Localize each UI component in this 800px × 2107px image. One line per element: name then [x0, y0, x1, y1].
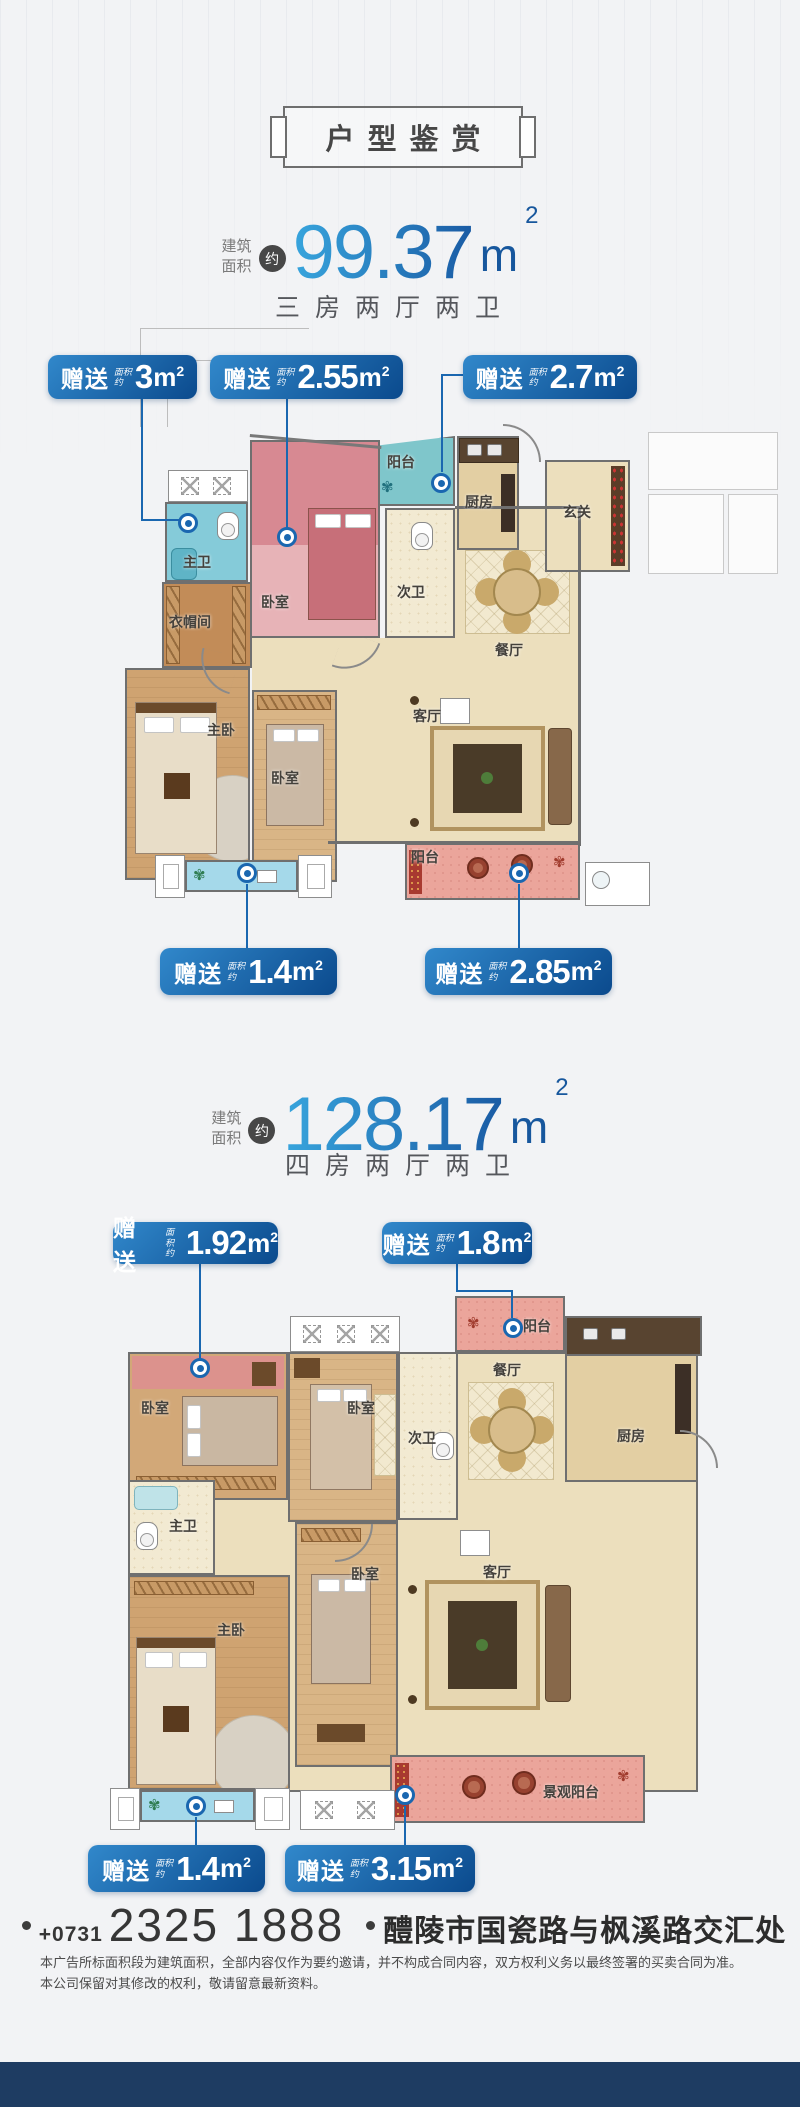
gift-label: 赠送 — [223, 360, 271, 394]
master-bedroom-room — [125, 668, 250, 880]
disclaimer-line2: 本公司保留对其修改的权利，敬请留意最新资料。 — [40, 1973, 762, 1994]
gift-unit-sup: 2 — [455, 1854, 463, 1870]
decor-knob-icon — [408, 1695, 417, 1704]
connector-line — [456, 1264, 458, 1292]
gift-point-marker — [503, 1318, 523, 1338]
page-title: 户型鉴赏 — [312, 116, 493, 158]
bedside-rug — [374, 1394, 396, 1476]
gift-sub1: 面积 — [436, 1233, 454, 1243]
gift-value: 1.4 — [176, 1850, 219, 1888]
gift-badge-1-8m2: 赠送 面积约 1.8 m2 — [382, 1222, 532, 1264]
gift-sub1: 面积 — [529, 367, 547, 377]
phone-number: 2325 1888 — [109, 1898, 344, 1952]
dining-table — [488, 1406, 536, 1454]
gift-badge-1-4m2: 赠送 面积约 1.4 m2 — [160, 948, 337, 995]
contact-row: +0731 2325 1888 醴陵市国瓷路与枫溪路交汇处 — [0, 1898, 800, 1952]
room-label-bath2: 次卫 — [397, 582, 425, 602]
deck-box — [257, 870, 277, 883]
unit1-area-value: 99.37 — [293, 223, 473, 284]
unit1-area-sup: 2 — [525, 202, 538, 230]
room-label-bedroom1: 卧室 — [261, 592, 289, 612]
rattan-chair — [512, 1771, 536, 1795]
room-label-kitchen: 厨房 — [465, 492, 493, 512]
side-platform — [298, 855, 332, 898]
gift-value: 3 — [135, 358, 152, 396]
pillow — [273, 729, 295, 742]
ac-platform — [168, 470, 248, 502]
ac-platform — [290, 1316, 400, 1352]
sofa — [548, 728, 572, 825]
gift-point-marker — [190, 1358, 210, 1378]
gift-unit-m: m — [247, 1228, 270, 1258]
gift-badge-2-85m2: 赠送 面积约 2.85 m2 — [425, 948, 612, 995]
unit1-area-prefix-line1: 建筑 — [222, 237, 252, 257]
gift-unit-m: m — [153, 362, 176, 392]
unit1-layout-subtitle: 三房两厅两卫 — [0, 288, 775, 324]
disclaimer-text: 本广告所标面积段为建筑面积，全部内容仅作为要约邀请，并不构成合同内容，双方权利义… — [40, 1952, 762, 1995]
unit2-area-prefix: 建筑 面积 — [211, 1109, 241, 1148]
gift-sub2: 约 — [276, 377, 294, 387]
gift-sub2: 约 — [350, 1869, 368, 1879]
appliance-column — [501, 474, 515, 532]
connector-line — [199, 1264, 201, 1358]
gift-unit: m2 — [292, 956, 323, 987]
tv-cabinet — [440, 698, 470, 724]
headboard — [137, 1638, 215, 1648]
gift-unit-m: m — [292, 956, 315, 986]
gift-unit-sup: 2 — [382, 363, 390, 379]
gift-point-marker — [431, 473, 451, 493]
gift-unit-sup: 2 — [315, 957, 323, 973]
gift-sub1: 面积 — [165, 1227, 183, 1248]
unit1-area-unit: m — [480, 228, 518, 282]
living-area — [330, 668, 580, 843]
gift-point-marker — [395, 1785, 415, 1805]
public-core-outline — [648, 494, 724, 574]
room-label-dining: 餐厅 — [495, 640, 523, 660]
rattan-chair — [462, 1775, 486, 1799]
gift-unit-m: m — [500, 1228, 523, 1258]
room-label-view-balcony: 景观阳台 — [543, 1782, 599, 1802]
bedroom1-room — [128, 1352, 288, 1500]
ac-unit-icon — [213, 477, 231, 495]
gift-badge-1-92m2: 赠送 面积约 1.92 m2 — [113, 1222, 278, 1264]
desk — [252, 1362, 276, 1386]
ac-unit-icon — [315, 1801, 333, 1819]
entry-door-arc — [680, 1430, 718, 1468]
header-banner: 户型鉴赏 — [283, 106, 523, 168]
rattan-chair — [467, 857, 489, 879]
headboard — [136, 703, 216, 713]
connector-line — [195, 1817, 197, 1847]
address-text: 醴陵市国瓷路与枫溪路交汇处 — [383, 1906, 786, 1950]
bed — [135, 702, 217, 854]
gift-unit: m2 — [153, 362, 184, 393]
pillow — [187, 1405, 201, 1429]
gift-unit: m2 — [220, 1853, 251, 1884]
room-label-entry: 玄关 — [563, 502, 591, 522]
east-wall — [578, 506, 581, 846]
pillow — [145, 1652, 173, 1668]
connector-line — [456, 1290, 513, 1292]
banner-left-handle-icon — [270, 116, 287, 158]
gift-unit-m: m — [220, 1853, 243, 1883]
toilet-icon — [411, 522, 433, 550]
ac-platform — [300, 1790, 395, 1830]
plant-icon — [193, 866, 206, 884]
room-label-living: 客厅 — [413, 706, 441, 726]
gift-value: 2.85 — [509, 953, 569, 991]
gift-unit-sup: 2 — [270, 1229, 278, 1245]
room-label-bedroom3: 卧室 — [351, 1564, 379, 1584]
gift-badge-1-4m2-b: 赠送 面积约 1.4 m2 — [88, 1845, 265, 1892]
bath2-room — [385, 508, 455, 638]
pillow — [179, 1652, 207, 1668]
sink-icon — [467, 444, 482, 456]
gift-sub2: 约 — [114, 377, 132, 387]
connector-line — [511, 1290, 513, 1318]
gift-unit: m2 — [500, 1228, 531, 1259]
bullet-icon — [22, 1921, 31, 1930]
gift-unit: m2 — [571, 956, 602, 987]
dresser — [317, 1724, 365, 1742]
pillow — [144, 717, 174, 733]
banner-right-handle-icon — [519, 116, 536, 158]
unit1-area-prefix: 建筑 面积 — [222, 237, 252, 276]
plant-icon — [381, 478, 394, 496]
laundry-fixture — [585, 862, 650, 906]
gift-label: 赠送 — [435, 955, 483, 989]
kitchen-room — [565, 1352, 698, 1482]
pillow — [345, 514, 371, 528]
round-rug — [210, 1715, 290, 1790]
gift-sub2: 约 — [165, 1248, 183, 1258]
ac-unit-icon — [303, 1325, 321, 1343]
wardrobe — [257, 695, 331, 710]
unit2-area-row: 建筑 面积 约 128.17 m 2 — [0, 1060, 780, 1156]
sink-icon — [487, 444, 502, 456]
bed — [136, 1637, 216, 1785]
dining-table — [493, 568, 541, 616]
phone-prefix: +0731 — [39, 1923, 103, 1947]
unit2-area-prefix-line1: 建筑 — [211, 1109, 241, 1129]
gift-label: 赠送 — [297, 1852, 345, 1886]
disclaimer-line1: 本广告所标面积段为建筑面积，全部内容仅作为要约邀请，并不构成合同内容，双方权利义… — [40, 1952, 762, 1973]
gift-badge-2-55m2: 赠送 面积约 2.55 m2 — [210, 355, 403, 399]
gift-label: 赠送 — [61, 360, 109, 394]
plant-icon — [467, 1314, 480, 1332]
gift-badge-3m2: 赠送 面积约 3 m2 — [48, 355, 197, 399]
connector-line — [141, 398, 143, 521]
gift-unit: m2 — [593, 362, 624, 393]
bottom-navy-bar — [0, 2062, 800, 2107]
entry-plant-cabinet — [611, 466, 625, 566]
decor-knob-icon — [408, 1585, 417, 1594]
connector-line — [141, 519, 179, 521]
gift-unit: m2 — [247, 1228, 278, 1259]
gift-sub1: 面积 — [114, 367, 132, 377]
plant-icon — [617, 1767, 630, 1785]
unit1-area-prefix-line2: 面积 — [222, 257, 252, 277]
connector-line — [286, 398, 288, 528]
decor-knob-icon — [410, 818, 419, 827]
pillow — [318, 1579, 340, 1592]
bed — [311, 1574, 371, 1684]
room-label-master-bath: 主卫 — [183, 552, 211, 572]
gift-label: 赠送 — [113, 1209, 160, 1277]
pillow — [315, 514, 341, 528]
pillow — [180, 717, 210, 733]
ac-unit-icon — [181, 477, 199, 495]
room-label-bath2: 次卫 — [408, 1428, 436, 1448]
desk — [294, 1358, 320, 1378]
ac-unit-icon — [337, 1325, 355, 1343]
closet-shelf — [232, 586, 246, 664]
ac-unit-icon — [371, 1325, 389, 1343]
toilet-icon — [136, 1522, 158, 1550]
gift-value: 1.8 — [457, 1224, 500, 1262]
gift-sub1: 面积 — [155, 1858, 173, 1868]
living-rug — [425, 1580, 540, 1710]
view-balcony-room — [390, 1755, 645, 1823]
room-label-bedroom2: 卧室 — [347, 1398, 375, 1418]
bedroom2-room — [288, 1352, 398, 1522]
unit2-layout-subtitle: 四房两厅两卫 — [0, 1146, 795, 1182]
gift-unit-sup: 2 — [617, 363, 625, 379]
gift-sub1: 面积 — [488, 961, 506, 971]
gift-label: 赠送 — [174, 955, 222, 989]
gift-point-marker — [509, 863, 529, 883]
gift-unit: m2 — [359, 362, 390, 393]
connector-line — [246, 884, 248, 950]
gift-unit: m2 — [432, 1853, 463, 1884]
bathtub — [134, 1486, 178, 1510]
room-label-master-bedroom: 主卧 — [217, 1620, 245, 1640]
toilet-icon — [217, 512, 239, 540]
gift-value: 2.7 — [550, 358, 593, 396]
room-label-master-bath: 主卫 — [169, 1516, 197, 1536]
unit1-area-row: 建筑 面积 约 99.37 m 2 — [0, 188, 760, 284]
entry-door-arc — [503, 424, 541, 462]
master-bedroom-room — [128, 1575, 290, 1790]
room-label-balcony-top: 阳台 — [523, 1316, 551, 1336]
poster-page: 户型鉴赏 建筑 面积 约 99.37 m 2 三房两厅两卫 赠送 面积约 3 m… — [0, 0, 800, 2107]
sofa — [545, 1585, 571, 1702]
gift-point-marker — [277, 527, 297, 547]
room-label-dining: 餐厅 — [493, 1360, 521, 1380]
gift-sub1: 面积 — [227, 961, 245, 971]
bed — [308, 508, 376, 620]
floor-plan-1: 阳台 厨房 玄关 主卫 卧室 次卫 衣帽间 餐厅 客厅 主卧 卧室 阳台 — [105, 320, 650, 908]
pillow — [297, 729, 319, 742]
connector-line — [404, 1806, 406, 1847]
bullet-icon — [366, 1921, 375, 1930]
ac-unit-icon — [357, 1801, 375, 1819]
connector-line — [518, 884, 520, 950]
duvet-pattern — [164, 773, 190, 799]
gift-badge-2-7m2: 赠送 面积约 2.7 m2 — [463, 355, 637, 399]
gift-sub2: 约 — [227, 972, 245, 982]
room-label-kitchen: 厨房 — [617, 1426, 645, 1446]
appliance-column — [675, 1364, 691, 1434]
gift-sub2: 约 — [155, 1869, 173, 1879]
room-label-balcony-bottom: 阳台 — [411, 847, 439, 867]
gift-unit-sup: 2 — [176, 363, 184, 379]
gift-sub1: 面积 — [350, 1858, 368, 1868]
gift-sub2: 约 — [488, 972, 506, 982]
duvet-pattern — [163, 1706, 189, 1732]
public-core-outline — [648, 432, 778, 490]
corridor-area — [250, 638, 580, 668]
living-rug-center — [448, 1601, 516, 1689]
side-platform — [110, 1788, 140, 1830]
gift-label: 赠送 — [102, 1852, 150, 1886]
wardrobe — [134, 1581, 254, 1595]
room-label-bedroom2: 卧室 — [271, 768, 299, 788]
public-core-outline — [728, 494, 778, 574]
sink-icon — [611, 1328, 626, 1340]
gift-sub2: 约 — [436, 1243, 454, 1253]
side-platform — [155, 855, 185, 898]
gift-value: 1.92 — [186, 1224, 246, 1262]
living-area — [400, 1490, 575, 1755]
plant-icon — [148, 1796, 161, 1814]
kitchen-counter — [565, 1316, 702, 1356]
deck-box — [214, 1800, 234, 1813]
gift-unit-m: m — [593, 362, 616, 392]
gift-unit-m: m — [432, 1853, 455, 1883]
room-label-bedroom1: 卧室 — [141, 1398, 169, 1418]
gift-unit-m: m — [359, 362, 382, 392]
unit2-area-sup: 2 — [555, 1074, 568, 1102]
gift-unit-m: m — [571, 956, 594, 986]
room-label-master-bedroom: 主卧 — [207, 720, 235, 740]
sink-icon — [583, 1328, 598, 1340]
gift-sub1: 面积 — [276, 367, 294, 377]
room-label-closet: 衣帽间 — [169, 612, 211, 632]
gift-unit-sup: 2 — [594, 957, 602, 973]
south-wall — [328, 841, 581, 844]
unit1-approx-circle: 约 — [259, 245, 286, 272]
gift-value: 1.4 — [248, 953, 291, 991]
gift-sub2: 约 — [529, 377, 547, 387]
connector-line — [442, 374, 464, 376]
gift-point-marker — [178, 513, 198, 533]
pillow — [187, 1433, 201, 1457]
side-platform — [255, 1788, 290, 1830]
gift-unit-sup: 2 — [243, 1854, 251, 1870]
connector-line — [441, 374, 443, 472]
living-rug-center — [453, 744, 521, 814]
unit2-approx-circle: 约 — [248, 1117, 275, 1144]
gift-label: 赠送 — [383, 1226, 431, 1260]
gift-label: 赠送 — [476, 360, 524, 394]
plant-icon — [553, 853, 566, 871]
gift-value: 3.15 — [371, 1850, 431, 1888]
pillow — [317, 1389, 341, 1402]
floor-plan-2: 阳台 卧室 卧室 次卫 餐厅 厨房 主卫 主卧 卧室 客厅 景观阳台 — [95, 1280, 710, 1845]
gift-unit-sup: 2 — [524, 1229, 532, 1245]
tv-cabinet — [460, 1530, 490, 1556]
room-label-balcony-top: 阳台 — [387, 452, 415, 472]
gift-value: 2.55 — [297, 358, 357, 396]
room-label-living: 客厅 — [483, 1562, 511, 1582]
bed — [182, 1396, 278, 1466]
gift-point-marker — [186, 1796, 206, 1816]
gift-badge-3-15m2: 赠送 面积约 3.15 m2 — [285, 1845, 475, 1892]
decor-knob-icon — [410, 696, 419, 705]
gift-point-marker — [237, 863, 257, 883]
living-rug — [430, 726, 545, 831]
